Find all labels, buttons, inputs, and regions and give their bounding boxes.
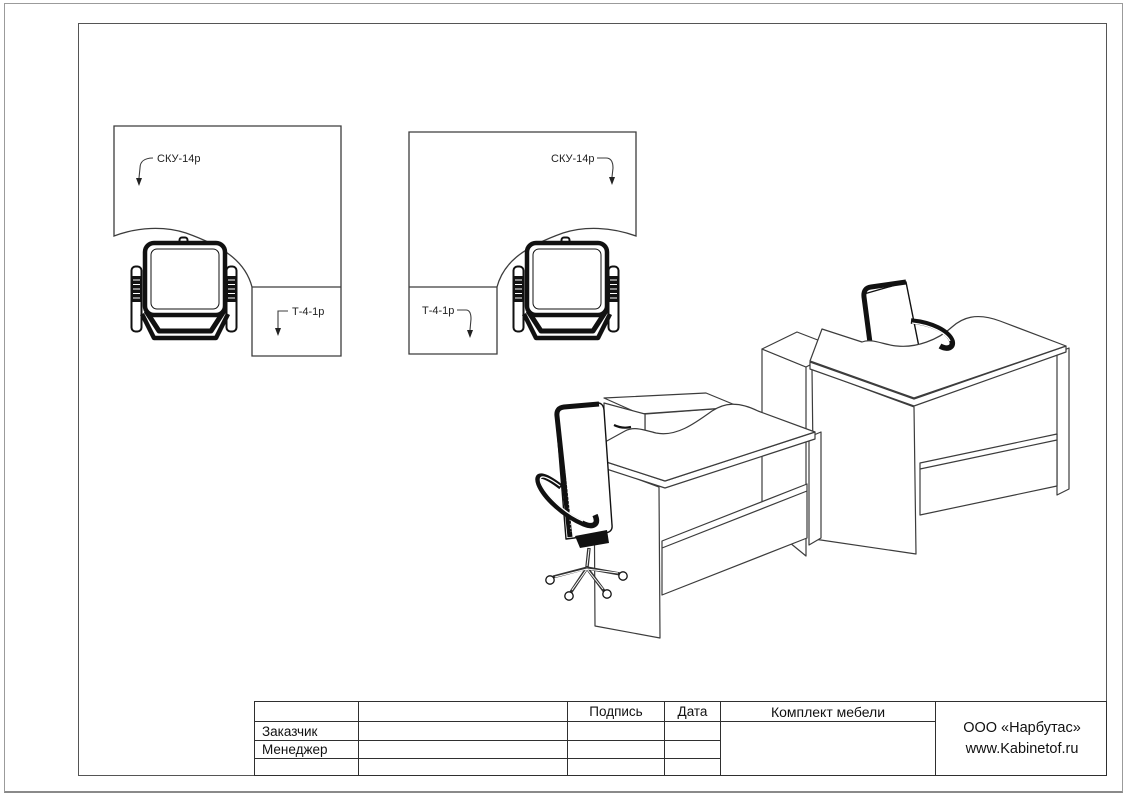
desk-left bbox=[591, 393, 821, 638]
armrest-right bbox=[227, 267, 237, 332]
manager-date-cell bbox=[665, 741, 721, 759]
desk-label-text: СКУ-14р bbox=[551, 153, 594, 165]
title-block-cell bbox=[255, 759, 359, 775]
title-block-cell bbox=[359, 702, 568, 722]
return-label-text: Т-4-1р bbox=[292, 306, 324, 318]
title-block-cell bbox=[359, 759, 568, 775]
armrest-left bbox=[514, 267, 524, 332]
armrest-left bbox=[132, 267, 142, 332]
set-content-cell bbox=[721, 722, 936, 775]
manager-signature-cell bbox=[568, 741, 665, 759]
set-title: Комплект мебели bbox=[721, 702, 936, 722]
company-name: ООО «Нарбутас» bbox=[963, 718, 1081, 739]
title-block-cell bbox=[568, 759, 665, 775]
right-side-panel bbox=[1057, 348, 1069, 495]
furniture-drawing: СКУ-14р Т-4-1р bbox=[0, 0, 1129, 800]
customer-signature-cell bbox=[568, 722, 665, 741]
company-website: www.Kabinetof.ru bbox=[966, 739, 1079, 760]
isometric-view bbox=[538, 282, 1069, 638]
customer-label: Заказчик bbox=[255, 722, 359, 741]
right-side-panel bbox=[809, 432, 821, 545]
plan-view-left: СКУ-14р Т-4-1р bbox=[114, 126, 341, 356]
chair-top-view bbox=[132, 238, 237, 339]
date-header: Дата bbox=[665, 702, 721, 722]
plan-view-right: СКУ-14р Т-4-1р bbox=[409, 132, 636, 354]
chair-top-view bbox=[514, 238, 619, 339]
manager-label: Менеджер bbox=[255, 741, 359, 759]
customer-value bbox=[359, 722, 568, 741]
return-label-text: Т-4-1р bbox=[422, 305, 454, 317]
manager-value bbox=[359, 741, 568, 759]
customer-date-cell bbox=[665, 722, 721, 741]
gas-lift bbox=[587, 548, 589, 567]
company-info: ООО «Нарбутас» www.Kabinetof.ru bbox=[936, 702, 1108, 775]
title-block-cell bbox=[665, 759, 721, 775]
title-block: Подпись Дата Комплект мебели ООО «Нарбут… bbox=[254, 701, 1107, 776]
signature-header: Подпись bbox=[568, 702, 665, 722]
title-block-cell bbox=[255, 702, 359, 722]
armrest-right bbox=[609, 267, 619, 332]
desk-label-text: СКУ-14р bbox=[157, 153, 200, 165]
modesty-panel bbox=[920, 434, 1057, 515]
